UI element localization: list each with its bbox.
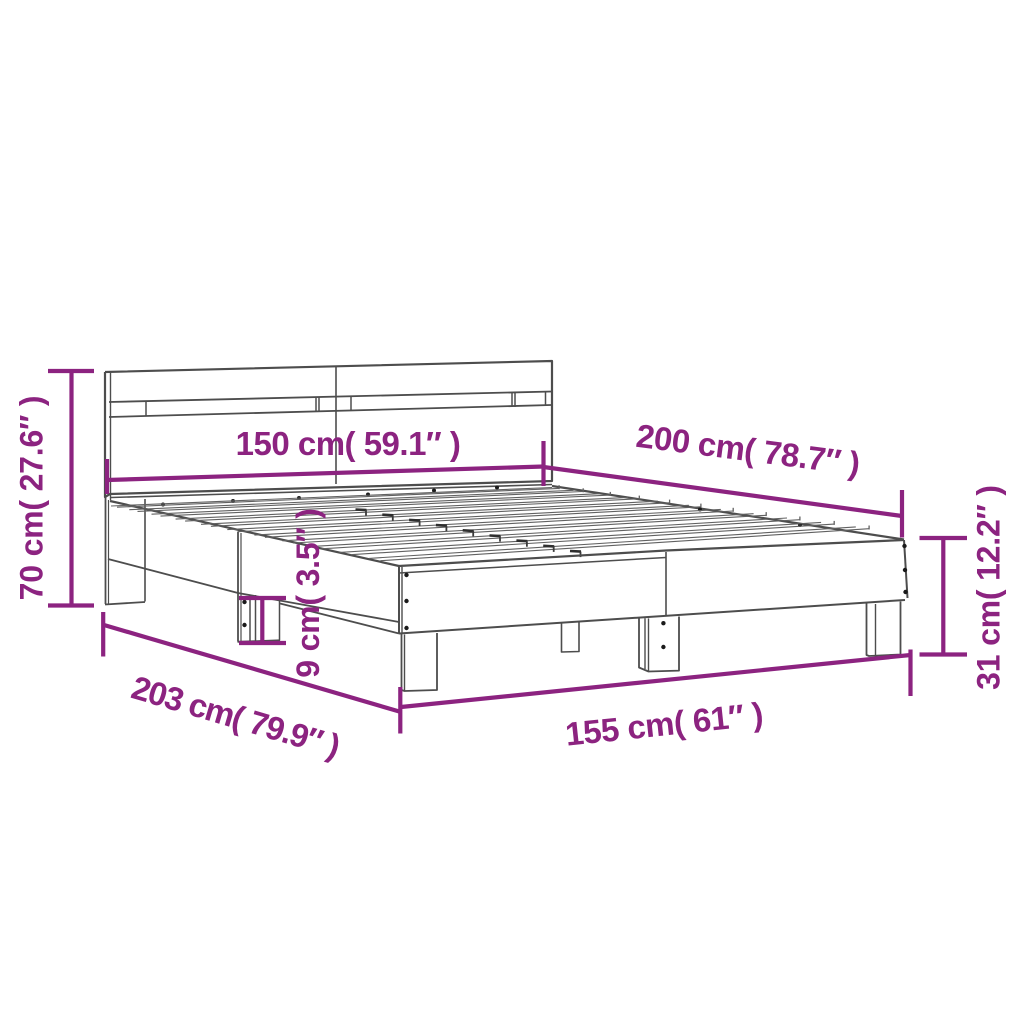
svg-text:150 cm( 59.1″ ): 150 cm( 59.1″ ) <box>236 425 461 462</box>
svg-text:70 cm( 27.6″ ): 70 cm( 27.6″ ) <box>14 396 50 601</box>
svg-text:9 cm( 3.5″ ): 9 cm( 3.5″ ) <box>290 508 326 677</box>
svg-text:31 cm( 12.2″ ): 31 cm( 12.2″ ) <box>971 485 1007 690</box>
